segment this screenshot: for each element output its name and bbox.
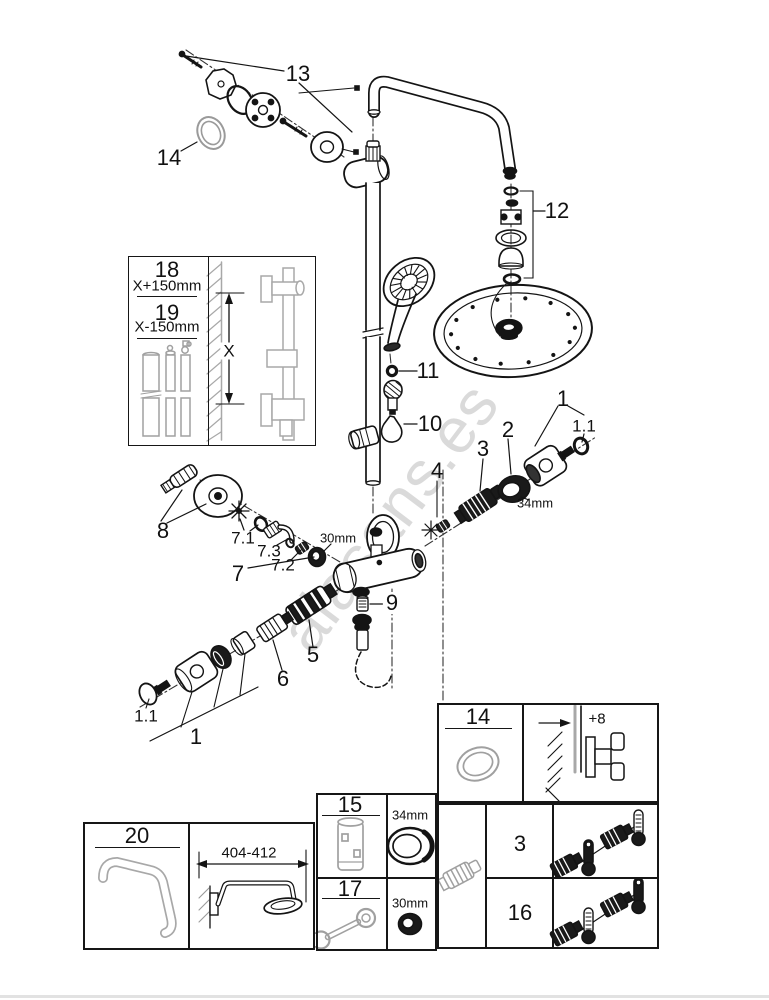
s-union-8: [160, 463, 242, 523]
checkvalve-box-vdivider1: [485, 805, 487, 947]
arm-box: [83, 822, 315, 950]
head-connection-parts-12: [491, 188, 545, 337]
label-19-formula: X-150mm: [134, 320, 199, 335]
label-3: 3: [477, 438, 489, 460]
label-plus8: +8: [588, 712, 605, 727]
label-14: 14: [157, 147, 181, 169]
rain-shower-head: [432, 281, 595, 381]
bottom-divider: [0, 995, 769, 998]
label-2: 2: [502, 419, 514, 441]
rail-length-box-divider: [208, 257, 209, 445]
gasket-box-divider: [522, 705, 524, 801]
label-10: 10: [418, 413, 442, 435]
label-1-1-right: 1.1: [572, 418, 596, 435]
label-13: 13: [286, 63, 310, 85]
label-30mm: 30mm: [320, 532, 356, 545]
label-8: 8: [157, 520, 169, 542]
label-table-34mm: 34mm: [392, 809, 428, 822]
glide-bracket-10: [347, 416, 417, 450]
label-table-15: 15: [338, 794, 362, 816]
label-table-16: 16: [508, 902, 532, 924]
label-table-17: 17: [338, 878, 362, 900]
label-7-1: 7.1: [231, 530, 255, 547]
label-6: 6: [277, 668, 289, 690]
label-1-right: 1: [557, 388, 569, 410]
label-12: 12: [545, 200, 569, 222]
filter-nipple: [384, 381, 402, 415]
gasket-ring-14: [192, 113, 230, 154]
checkvalve-box-hdivider: [485, 877, 657, 879]
label-5: 5: [307, 644, 319, 666]
label-11: 11: [417, 360, 440, 382]
arm-box-divider: [188, 824, 190, 948]
hand-shower-seal-11: [387, 366, 417, 375]
label-34mm: 34mm: [517, 497, 553, 510]
label-table-30mm: 30mm: [392, 897, 428, 910]
checkvalve-box: [437, 803, 659, 949]
checkvalve-box-vdivider2: [552, 805, 554, 947]
label-20: 20: [125, 825, 149, 847]
label-18-formula: X+150mm: [133, 279, 202, 294]
tools-box-vdivider: [386, 795, 388, 949]
underline-18: [137, 296, 197, 297]
label-404-412: 404-412: [221, 846, 276, 861]
label-x-dimension: X: [220, 343, 237, 360]
label-9: 9: [383, 592, 401, 614]
label-4: 4: [431, 460, 443, 482]
tools-box-hdivider: [318, 877, 435, 879]
label-1-left: 1: [187, 726, 205, 748]
label-table-14: 14: [466, 706, 490, 728]
label-7: 7: [232, 563, 244, 585]
label-table-3: 3: [514, 833, 526, 855]
shower-arm: [368, 82, 517, 179]
label-7-2: 7.2: [271, 557, 295, 574]
underline-19: [137, 338, 197, 339]
parts-diagram-page: alasans.es: [0, 0, 769, 1000]
label-1-1-left: 1.1: [134, 708, 158, 725]
